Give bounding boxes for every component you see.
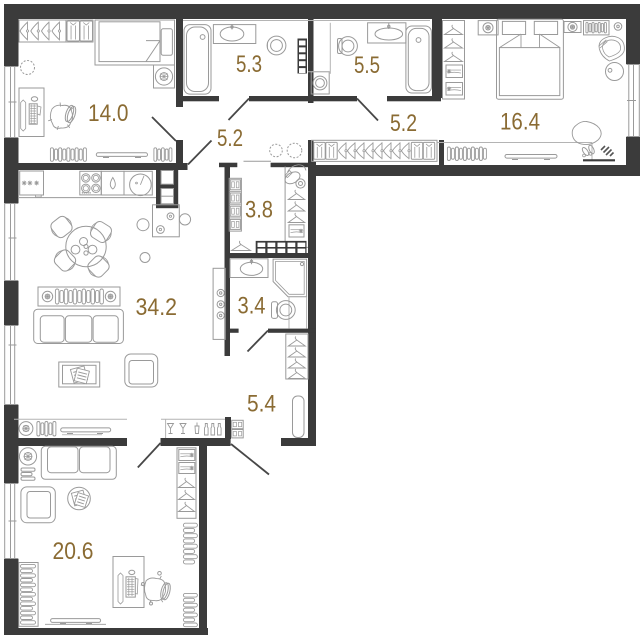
svg-text:3.8: 3.8: [245, 197, 273, 224]
svg-text:14.0: 14.0: [88, 100, 129, 127]
svg-text:5.5: 5.5: [354, 52, 380, 79]
svg-text:34.2: 34.2: [136, 294, 178, 321]
svg-text:16.4: 16.4: [500, 109, 540, 136]
svg-text:3.4: 3.4: [238, 293, 266, 320]
svg-text:20.6: 20.6: [53, 538, 94, 565]
svg-text:5.2: 5.2: [390, 110, 417, 137]
svg-text:5.2: 5.2: [217, 125, 243, 152]
svg-text:5.4: 5.4: [247, 391, 276, 418]
svg-text:5.3: 5.3: [236, 51, 262, 78]
